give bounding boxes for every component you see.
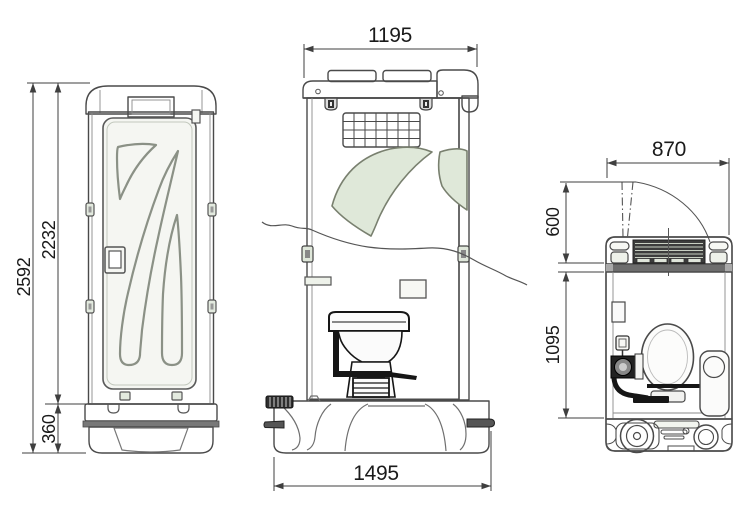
dim-label-side-base-width: 1495	[353, 462, 399, 485]
plan-paper-holder	[612, 302, 625, 322]
front-door-handle	[105, 247, 125, 273]
technical-drawing-canvas: 2592 2232 360 1195 1495	[0, 0, 745, 511]
plan-toilet-bowl	[642, 324, 694, 390]
side-leaf-decoration	[332, 147, 467, 236]
front-base-seam	[83, 421, 219, 427]
roof-screw-left	[316, 89, 321, 94]
side-base-left-lip	[264, 421, 284, 428]
dim-label-front-cabin-height: 2232	[39, 220, 59, 259]
dimension-front-overall-height: 2592	[14, 83, 90, 453]
dim-label-plan-door-swing-depth: 600	[543, 207, 563, 236]
dimension-front-cabin-height: 2232	[39, 83, 86, 404]
front-door	[103, 110, 200, 389]
dimension-side-base-width: 1495	[274, 431, 491, 491]
plan-view	[606, 182, 732, 453]
dimension-front-base-height: 360	[39, 404, 59, 453]
door-swing-arc	[636, 182, 710, 242]
side-view	[262, 70, 527, 453]
drain-cap-ribbed	[266, 396, 293, 408]
front-vent-window	[128, 97, 174, 117]
roof-clamps	[325, 98, 432, 110]
plan-corner-cabinet	[700, 351, 729, 416]
dim-label-plan-interior-depth: 1095	[543, 325, 563, 364]
dim-label-plan-overall-width: 870	[652, 138, 686, 161]
tank-cap-small	[683, 425, 718, 449]
plan-rear-tank	[606, 419, 732, 453]
front-base	[83, 404, 219, 453]
plan-room	[606, 272, 732, 419]
side-interior-shelf	[305, 277, 331, 285]
side-vent-grille	[343, 113, 420, 147]
side-interior-box	[400, 280, 426, 298]
side-base-right-tab	[467, 419, 495, 427]
front-door-rain-cap	[192, 110, 200, 123]
dimension-plan-interior-depth: 1095	[543, 272, 604, 418]
side-base	[264, 396, 495, 453]
dim-label-side-roof-width: 1195	[368, 24, 412, 47]
roof-screw-right	[439, 91, 444, 96]
dim-label-front-overall-height: 2592	[14, 257, 34, 296]
dim-label-front-base-height: 360	[39, 414, 59, 443]
front-view	[83, 86, 219, 453]
door-open-dashdot	[622, 182, 633, 237]
dimension-plan-overall-width: 870	[607, 138, 729, 235]
plan-threshold	[606, 264, 732, 272]
side-toilet	[329, 312, 417, 397]
door-swing	[622, 182, 710, 242]
tank-cap-large	[616, 420, 659, 453]
